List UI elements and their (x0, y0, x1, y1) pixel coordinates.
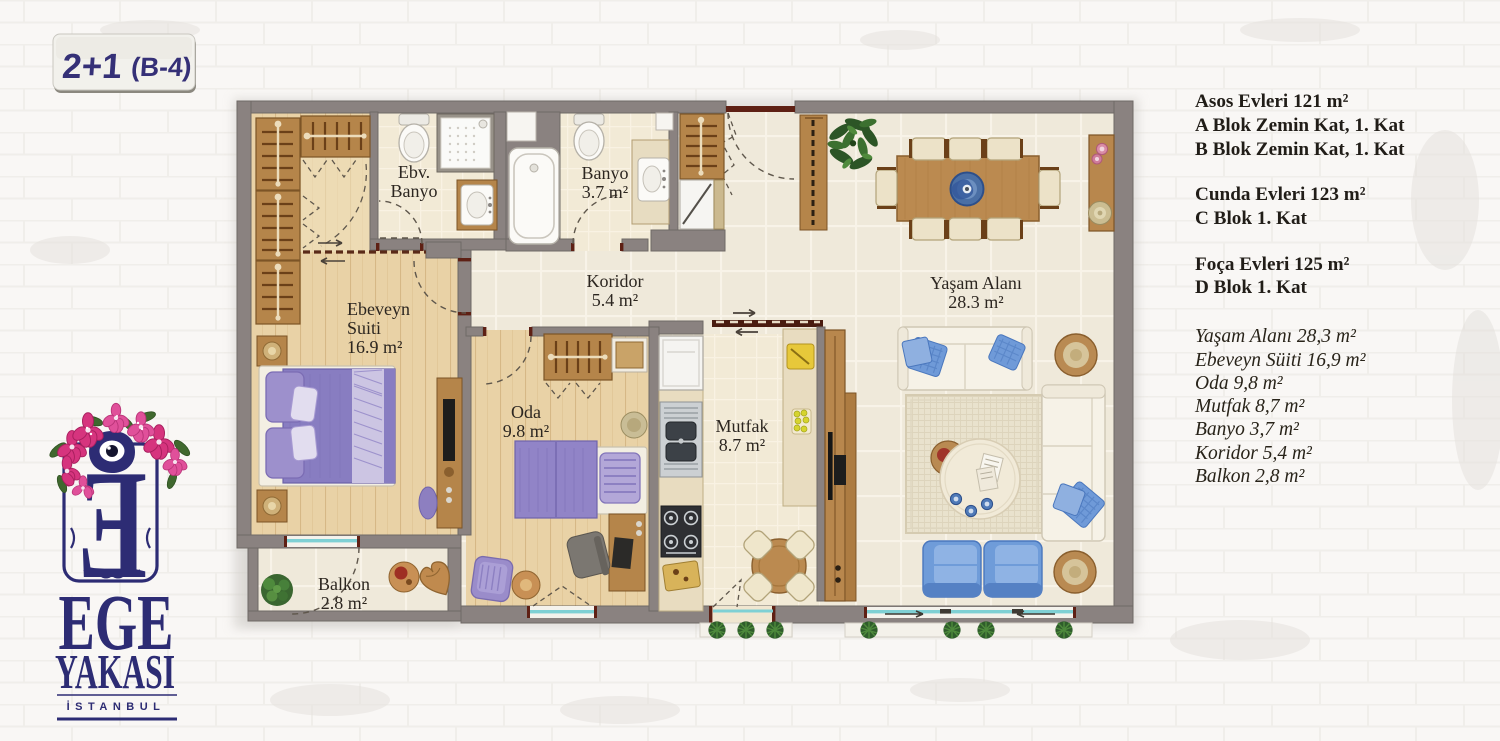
svg-text:Banyo: Banyo (391, 181, 438, 201)
svg-text:9.8 m²: 9.8 m² (503, 421, 549, 441)
svg-text:İSTANBUL: İSTANBUL (67, 700, 166, 713)
svg-text:Oda: Oda (511, 402, 541, 422)
svg-text:YAKASI: YAKASI (55, 644, 175, 699)
svg-text:Foça Evleri 125 m²: Foça Evleri 125 m² (1195, 254, 1350, 275)
svg-text:16.9 m²: 16.9 m² (347, 337, 402, 357)
svg-text:(B-4): (B-4) (130, 52, 192, 82)
svg-text:Yaşam Alanı: Yaşam Alanı (930, 273, 1022, 293)
svg-text:Ebeveyn Süiti 16,9 m²: Ebeveyn Süiti 16,9 m² (1194, 350, 1367, 371)
svg-text:Ebv.: Ebv. (398, 162, 430, 182)
svg-text:Yaşam Alanı 28,3 m²: Yaşam Alanı 28,3 m² (1195, 326, 1357, 347)
svg-text:A Blok Zemin Kat, 1. Kat: A Blok Zemin Kat, 1. Kat (1195, 115, 1405, 136)
svg-text:5.4 m²: 5.4 m² (592, 290, 638, 310)
svg-text:D Blok 1. Kat: D Blok 1. Kat (1195, 277, 1308, 298)
svg-text:Banyo 3,7 m²: Banyo 3,7 m² (1195, 419, 1300, 440)
svg-text:Mutfak: Mutfak (716, 416, 769, 436)
svg-text:B Blok Zemin Kat, 1. Kat: B Blok Zemin Kat, 1. Kat (1195, 139, 1405, 160)
svg-text:Oda 9,8 m²: Oda 9,8 m² (1195, 373, 1284, 394)
svg-text:2+1: 2+1 (61, 47, 123, 86)
svg-text:28.3 m²: 28.3 m² (948, 292, 1003, 312)
svg-text:3.7 m²: 3.7 m² (582, 182, 628, 202)
svg-text:Koridor 5,4 m²: Koridor 5,4 m² (1194, 443, 1313, 464)
svg-text:Banyo: Banyo (582, 163, 629, 183)
svg-text:2.8 m²: 2.8 m² (321, 593, 367, 613)
svg-text:C Blok 1. Kat: C Blok 1. Kat (1195, 208, 1308, 229)
svg-text:Balkon 2,8 m²: Balkon 2,8 m² (1195, 466, 1305, 487)
svg-text:Ebeveyn: Ebeveyn (347, 299, 410, 319)
svg-text:Koridor: Koridor (587, 271, 644, 291)
svg-text:Cunda Evleri 123 m²: Cunda Evleri 123 m² (1195, 184, 1366, 205)
svg-text:Asos Evleri 121 m²: Asos Evleri 121 m² (1195, 91, 1349, 112)
svg-text:Balkon: Balkon (318, 574, 370, 594)
svg-text:Suiti: Suiti (347, 318, 381, 338)
svg-text:Mutfak 8,7 m²: Mutfak 8,7 m² (1194, 396, 1305, 417)
svg-text:8.7 m²: 8.7 m² (719, 435, 765, 455)
